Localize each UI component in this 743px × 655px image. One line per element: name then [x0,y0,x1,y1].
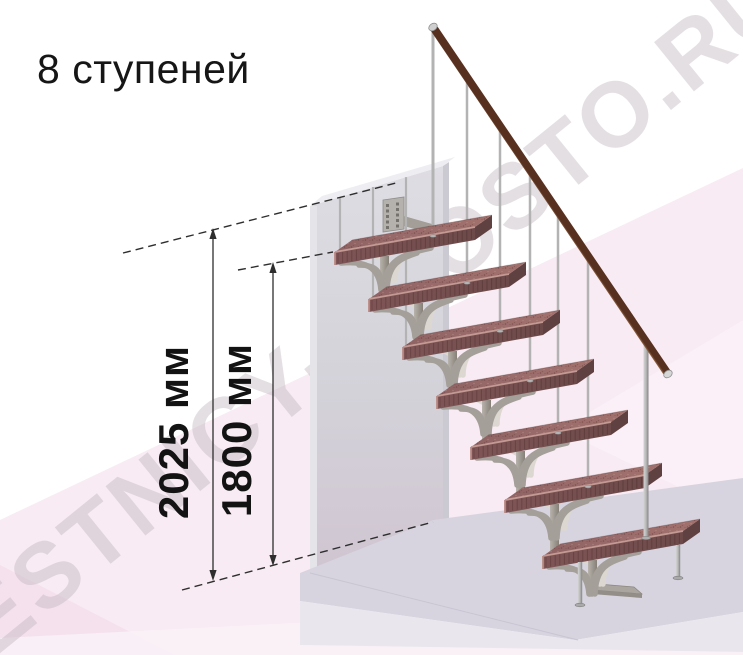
dimension-2025-label: 2025 мм [150,345,197,519]
baluster-flange [555,432,561,435]
floor-leg-flange [673,576,683,580]
rail-end-post-flange [642,536,651,539]
baluster-flange [497,330,503,333]
diagram-canvas: LESTNICY-PROSTO.RU [0,0,743,655]
baluster-flange [430,235,436,238]
floor-leg [676,545,680,578]
staircase-dimension-diagram: LESTNICY-PROSTO.RU [0,0,743,655]
baluster-flange [464,282,470,285]
baluster-flange [527,380,533,383]
page-title: 8 ступеней [37,46,250,92]
floor-leg-flange [575,603,585,607]
baluster-flange [585,485,591,488]
dimension-1800-label: 1800 мм [213,343,260,517]
rail-end-post [644,340,649,538]
floor-leg [578,562,582,605]
